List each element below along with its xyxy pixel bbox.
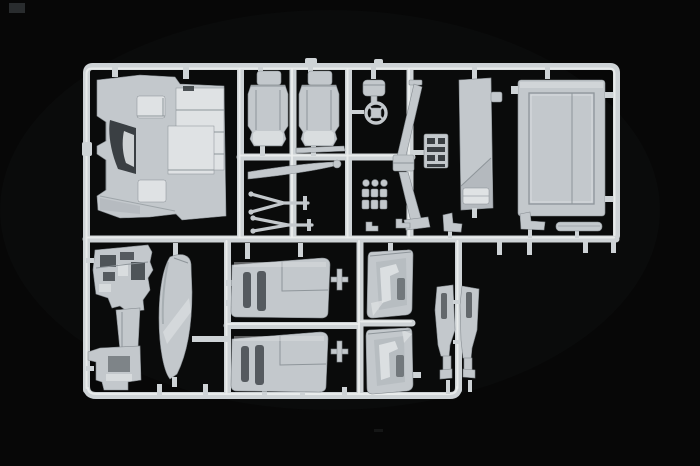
door-panel-upper <box>367 250 413 318</box>
photo-stage <box>0 0 700 466</box>
sprue-photo <box>0 0 700 466</box>
bunk-bed-lower <box>231 332 328 392</box>
photo-artifact-smudge <box>374 429 383 432</box>
door-panel-lower <box>366 328 413 394</box>
cab-floor-panel <box>97 75 226 220</box>
bunk-bed-upper <box>231 258 330 318</box>
cab-back-panel <box>511 80 613 216</box>
pedal-cluster <box>424 134 448 168</box>
photo-artifact-chip <box>9 3 25 13</box>
steering-column-hub <box>393 155 414 171</box>
